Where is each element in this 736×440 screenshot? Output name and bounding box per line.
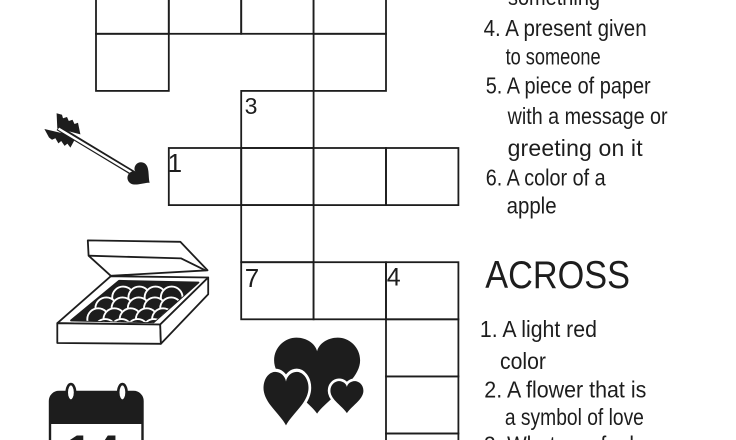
svg-text:3. What you feel: 3. What you feel — [484, 432, 634, 440]
svg-text:something: something — [508, 0, 600, 10]
svg-text:a symbol of love: a symbol of love — [505, 404, 644, 430]
svg-text:with a message or: with a message or — [507, 103, 668, 129]
svg-text:2. A flower that is: 2. A flower that is — [484, 377, 646, 403]
svg-text:14: 14 — [65, 425, 121, 440]
svg-text:3: 3 — [245, 93, 258, 119]
svg-text:to someone: to someone — [506, 44, 601, 70]
svg-text:5. A piece of paper: 5. A piece of paper — [486, 73, 651, 99]
svg-text:1: 1 — [168, 148, 182, 178]
svg-text:4. A present given: 4. A present given — [484, 15, 647, 41]
svg-text:6. A color of a: 6. A color of a — [486, 165, 606, 191]
svg-text:1. A light red: 1. A light red — [480, 316, 597, 342]
svg-text:4: 4 — [387, 263, 401, 291]
svg-text:ACROSS: ACROSS — [485, 254, 630, 297]
svg-text:greeting on it: greeting on it — [508, 135, 644, 161]
svg-text:color: color — [500, 348, 546, 374]
svg-text:apple: apple — [507, 193, 557, 219]
svg-text:7: 7 — [245, 263, 259, 293]
